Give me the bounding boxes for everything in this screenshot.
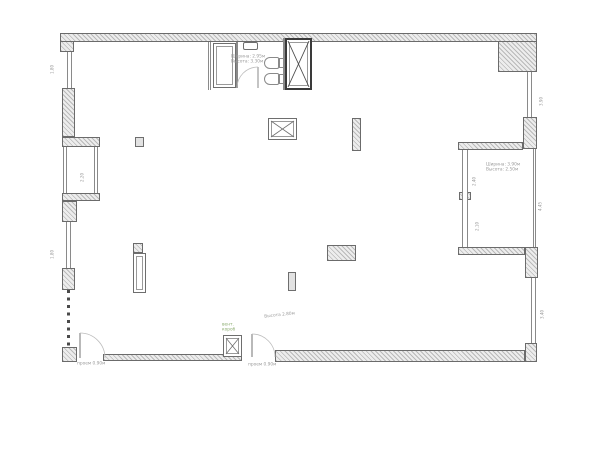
dim-right-bottom: 3.40 xyxy=(540,310,545,319)
dim-loggia-b: 2.10 xyxy=(475,222,480,231)
window-right-bottom xyxy=(531,278,536,343)
pier-left-middle xyxy=(62,201,77,222)
shower-closet xyxy=(213,43,236,88)
radiator-cap xyxy=(133,243,143,253)
column-small-center xyxy=(288,272,296,291)
bathroom-wall-left xyxy=(208,42,211,90)
loggia-note: Ширина: 3.90м Высота: 2.50м xyxy=(486,162,520,172)
shower-closet-inner xyxy=(216,46,233,85)
loggia-glazing-right xyxy=(533,149,536,247)
door-frame-box-inner xyxy=(226,338,239,354)
bathroom-note-line2: Высота: 3.30м xyxy=(231,59,265,64)
loggia-note-line2: Высота: 2.50м xyxy=(486,167,520,172)
wall-bottom-left-segment xyxy=(103,354,242,361)
wall-loggia-bottom xyxy=(458,247,525,255)
pier-right-upper xyxy=(523,117,537,149)
wall-corner-top-left xyxy=(60,41,74,52)
block-left-lower xyxy=(62,268,75,290)
dashed-wall-left xyxy=(67,290,70,347)
pier-top-right xyxy=(498,41,537,72)
bathroom-wall-mid xyxy=(236,42,238,88)
hatch-box-right xyxy=(327,245,356,261)
window-left-middle xyxy=(66,222,71,268)
pier-left-upper xyxy=(62,88,75,137)
wall-loggia-top xyxy=(458,142,523,150)
bathroom-note: Ширина: 2.95м Высота: 3.30м xyxy=(231,54,265,64)
dim-left-mid: 1.80 xyxy=(50,250,55,259)
duct-label: вент. короб xyxy=(222,322,235,332)
column-small-left xyxy=(135,137,144,147)
bay-window-outer xyxy=(63,147,67,193)
duct-box-center-inner xyxy=(271,121,294,137)
stub-left-bay-bottom xyxy=(62,193,100,201)
stub-left-bay-top xyxy=(62,137,100,147)
elevator-shaft xyxy=(285,38,312,90)
door-bath-arc xyxy=(237,67,258,88)
dim-bay: 2.20 xyxy=(80,173,85,182)
elevator-shaft-inner xyxy=(289,42,308,86)
mid-door-dim: проем 0.90м xyxy=(248,362,276,367)
pier-bottom-left xyxy=(62,347,77,362)
dim-left-top: 1.80 xyxy=(50,65,55,74)
dim-loggia-a: 2.40 xyxy=(472,177,477,186)
window-left-top xyxy=(67,52,72,88)
bay-window-inner xyxy=(94,147,98,193)
window-right-top xyxy=(527,72,532,117)
floor-plan-canvas: Ширина: 2.95м Высота: 3.30м Ширина: 3.90… xyxy=(0,0,600,450)
door-left-arc xyxy=(80,333,105,358)
radiator-body xyxy=(133,253,146,293)
loggia-partition-glazing xyxy=(462,150,468,247)
duct-label-line2: короб xyxy=(222,327,235,332)
wall-bottom-right-segment xyxy=(275,350,525,362)
duct-box-center xyxy=(268,118,297,140)
door-mid-arc xyxy=(252,334,275,357)
mid-door-note: Высота 2.80м xyxy=(264,311,295,319)
pier-bottom-right xyxy=(525,343,537,362)
column-center xyxy=(352,118,361,151)
door-frame-box xyxy=(223,335,242,357)
radiator-body-inner xyxy=(136,256,143,290)
toilet-1 xyxy=(264,57,279,69)
toilet-2 xyxy=(264,73,279,85)
sink xyxy=(243,42,258,50)
pier-right-middle xyxy=(525,247,538,278)
left-door-dim: проем 0.90м xyxy=(77,361,105,366)
dim-right-mid: 4.45 xyxy=(538,202,543,211)
dim-right-top: 3.90 xyxy=(539,97,544,106)
